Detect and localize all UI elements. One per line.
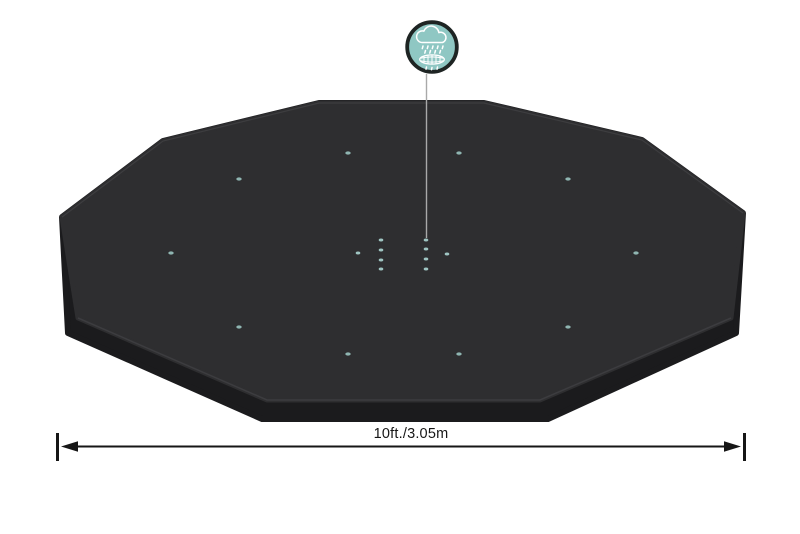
grommet-dot (565, 325, 570, 328)
grommet-dot (236, 325, 241, 328)
dimension-tick-right (743, 433, 746, 461)
dimension-tick-left (56, 433, 59, 461)
drain-hole-dot (424, 268, 429, 271)
rain-drainage-icon (405, 20, 459, 74)
product-diagram: 10ft./3.05m (0, 0, 800, 534)
grommet-dot (565, 177, 570, 180)
pool-cover-illustration (0, 0, 800, 534)
grommet-dot (345, 352, 350, 355)
dimension-arrow-right (724, 441, 741, 452)
drain-hole-dot (445, 253, 450, 256)
grommet-dot (345, 151, 350, 154)
rain-drainage-icon-art (405, 20, 459, 74)
drain-hole-dot (379, 268, 384, 271)
drain-hole-dot (356, 252, 361, 255)
drain-hole-dot (424, 258, 429, 261)
drain-hole-dot (379, 259, 384, 262)
dimension-shaft (70, 446, 732, 448)
drain-hole-dot (379, 249, 384, 252)
drain-hole-dot (379, 239, 384, 242)
grommet-dot (456, 352, 461, 355)
dimension-arrow-left (61, 441, 78, 452)
grommet-dot (456, 151, 461, 154)
drain-hole-dot (424, 239, 429, 242)
grommet-dot (633, 251, 638, 254)
grommet-dot (236, 177, 241, 180)
grommet-dot (168, 251, 173, 254)
drain-hole-dot (424, 248, 429, 251)
dimension-label: 10ft./3.05m (331, 425, 491, 443)
